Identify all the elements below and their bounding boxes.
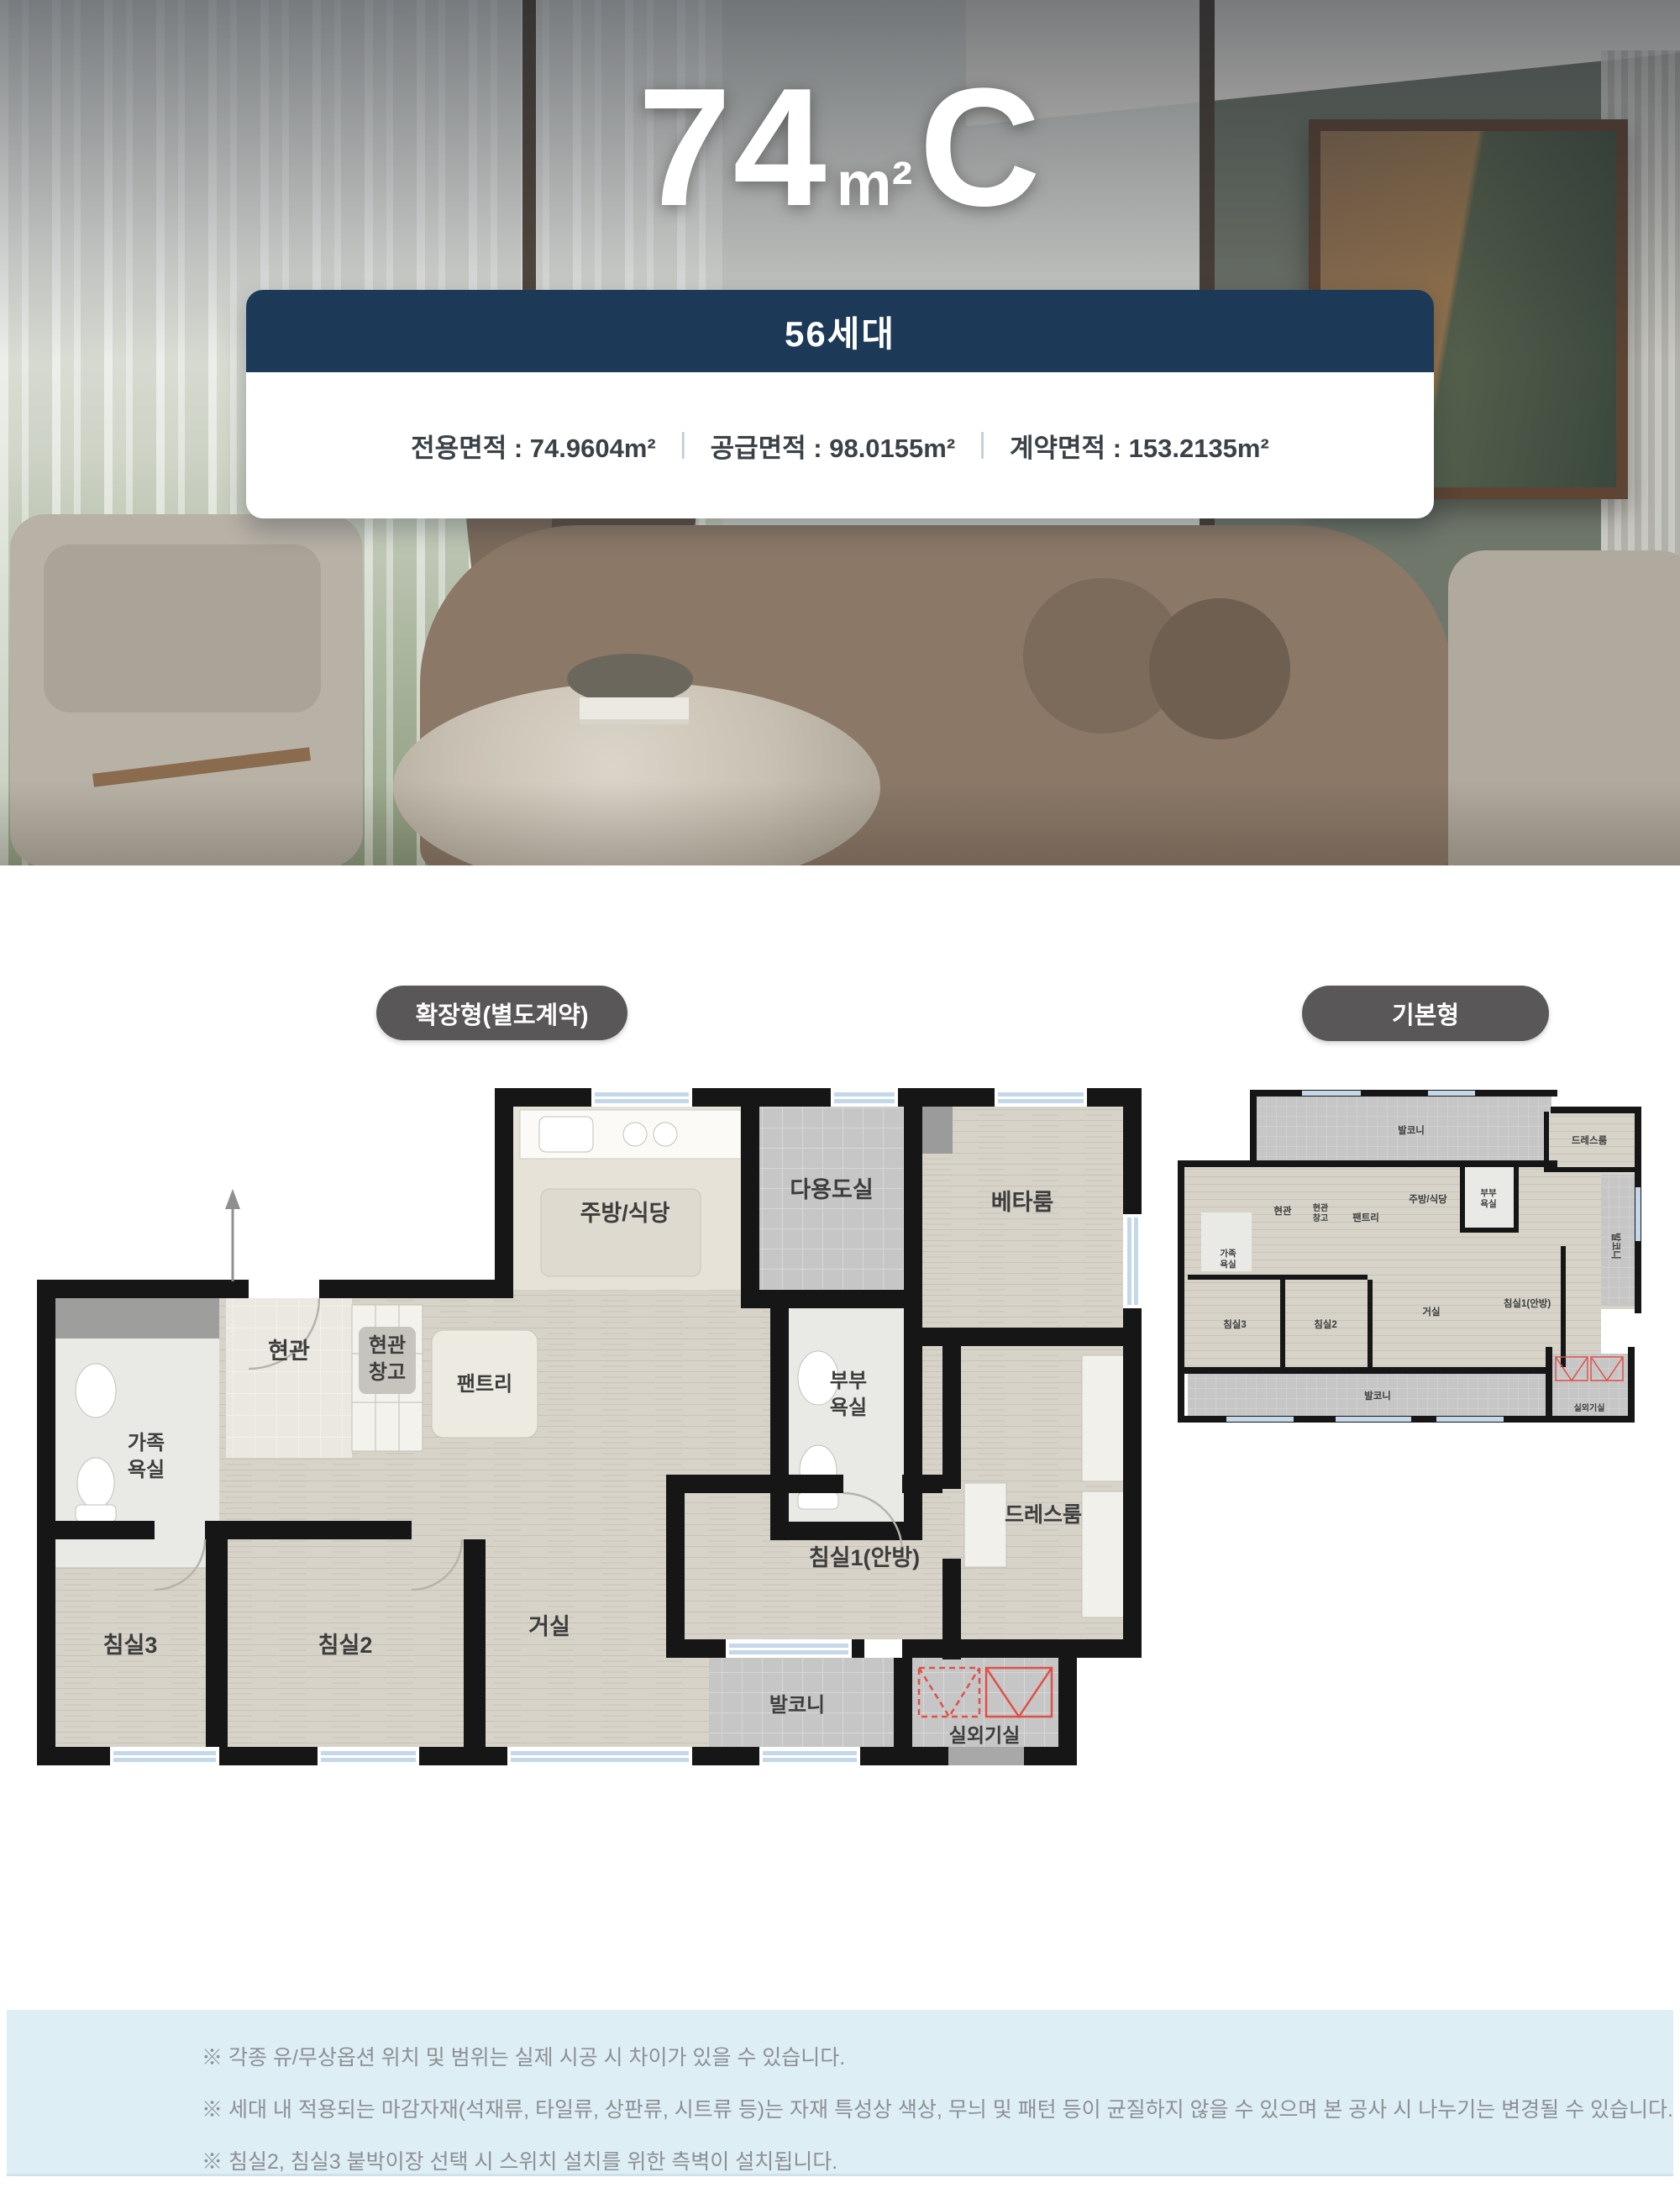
room-label-entry: 현관 (1273, 1205, 1292, 1217)
room-label-kitchen: 주방/식당 (580, 1201, 670, 1226)
unit-area-unit: m² (837, 148, 912, 219)
room-label-family-bath: 욕실 (128, 1459, 165, 1481)
area-separator: | (680, 428, 687, 460)
room-label-kitchen: 주방/식당 (1409, 1193, 1447, 1205)
room-label-bedroom2: 침실2 (318, 1633, 373, 1658)
note-line: ※ 세대 내 적용되는 마감자재(석재류, 타일류, 상판류, 시트류 등)는 … (7, 2084, 1673, 2136)
hero-table-bowl (567, 654, 693, 704)
households-badge: 56세대 (246, 290, 1434, 372)
hero-table-books (580, 697, 689, 719)
room-label-entry: 현관 (268, 1339, 310, 1364)
room-label-family-bath: 욕실 (1220, 1259, 1236, 1270)
room-label-balcony: 발코니 (769, 1694, 825, 1717)
room-label-master-bath: 욕실 (830, 1396, 867, 1419)
unit-number: 74 (638, 55, 827, 240)
room-label-living: 거실 (1422, 1306, 1440, 1318)
room-label-living: 거실 (528, 1614, 570, 1639)
floor-plan-expanded: 주방/식당 다용도실 베타룸 현관 현관 창고 팬트리 가족 욕실 부부 욕실 … (37, 1088, 1142, 1769)
notes-panel: ※ 각종 유/무상옵션 위치 및 범위는 실제 시공 시 차이가 있을 수 있습… (7, 2010, 1673, 2176)
room-label-entry-storage: 현관 (1313, 1202, 1329, 1213)
floor-plan-basic: 발코니 드레스룸 주방/식당 부부 욕실 현관 현관 창고 팬트리 가족 욕실 … (1176, 1086, 1659, 1423)
unit-letter: C (919, 55, 1042, 240)
room-label-balcony-right: 발코니 (1610, 1233, 1622, 1260)
unit-info-card: 56세대 전용면적 : 74.9604m² | 공급면적 : 98.0155m²… (246, 290, 1434, 518)
room-label-bedroom3: 침실3 (1223, 1318, 1247, 1330)
room-label-master-bath: 욕실 (1480, 1198, 1496, 1209)
unit-title: 74 m² C (0, 55, 1680, 240)
room-label-outdoor-unit: 실외기실 (1574, 1402, 1605, 1413)
area-contract: 계약면적 : 153.2135m² (1010, 427, 1269, 465)
room-label-dress-room: 드레스룸 (1572, 1134, 1608, 1146)
room-label-dress-room: 드레스룸 (1005, 1503, 1082, 1527)
room-label-entry-storage: 현관 (369, 1334, 406, 1357)
hero-floor-shadow (0, 781, 1680, 865)
room-label-balcony-bottom: 발코니 (1364, 1390, 1391, 1402)
room-label-pantry: 팬트리 (1352, 1212, 1379, 1223)
area-supply: 공급면적 : 98.0155m² (711, 427, 956, 465)
area-info-row: 전용면적 : 74.9604m² | 공급면적 : 98.0155m² | 계약… (246, 372, 1434, 518)
room-label-entry-storage: 창고 (369, 1361, 406, 1384)
expanded-plan-badge[interactable]: 확장형(별도계약) (376, 986, 627, 1040)
room-label-bedroom3: 침실3 (103, 1633, 158, 1658)
room-label-bedroom2: 침실2 (1314, 1318, 1337, 1330)
north-arrow-icon (225, 1189, 240, 1281)
room-label-entry-storage: 창고 (1313, 1212, 1328, 1223)
basic-plan-badge[interactable]: 기본형 (1302, 986, 1549, 1041)
area-separator: | (979, 428, 986, 460)
room-label-family-bath: 가족 (128, 1432, 165, 1454)
area-exclusive: 전용면적 : 74.9604m² (411, 427, 656, 465)
hero-pouf (1149, 598, 1290, 739)
room-label-bedroom1: 침실1(안방) (1504, 1297, 1551, 1309)
room-label-master-bath: 부부 (830, 1370, 867, 1392)
room-label-balcony-top: 발코니 (1398, 1124, 1425, 1136)
hero-photo: 74 m² C 56세대 전용면적 : 74.9604m² | 공급면적 : 9… (0, 0, 1680, 865)
room-label-beta-room: 베타룸 (991, 1190, 1054, 1215)
note-line: ※ 각종 유/무상옵션 위치 및 범위는 실제 시공 시 차이가 있을 수 있습… (7, 2010, 1673, 2084)
room-label-master-bath: 부부 (1480, 1188, 1497, 1198)
room-label-bedroom1: 침실1(안방) (809, 1545, 920, 1570)
hero-armchair-cushion (44, 544, 321, 713)
room-label-family-bath: 가족 (1220, 1248, 1236, 1259)
room-label-outdoor-unit: 실외기실 (949, 1724, 1021, 1746)
room-label-utility: 다용도실 (790, 1177, 873, 1202)
room-label-pantry: 팬트리 (457, 1373, 512, 1396)
